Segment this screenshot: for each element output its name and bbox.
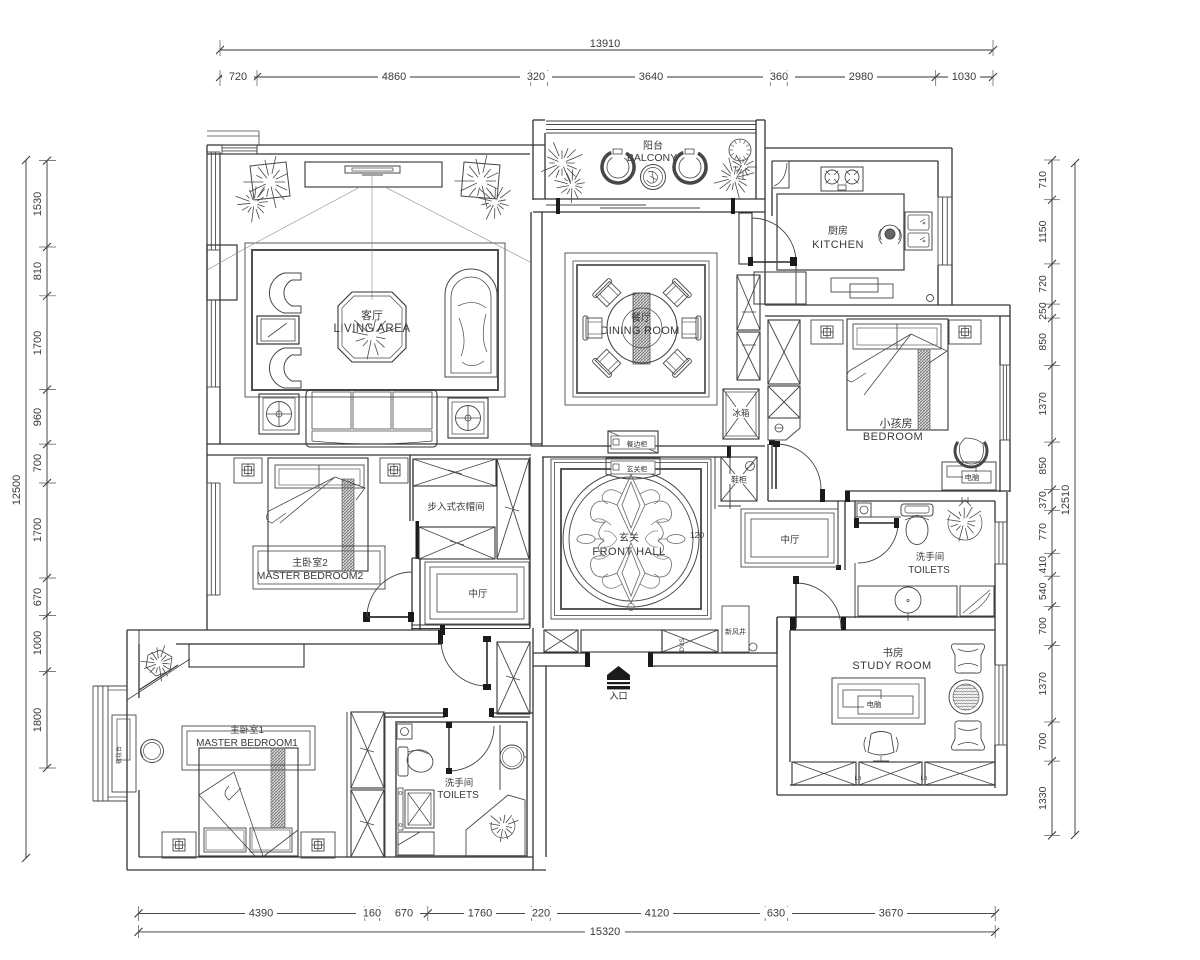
svg-text:DINING ROOM: DINING ROOM: [600, 325, 679, 337]
svg-text:630: 630: [767, 907, 785, 919]
svg-text:710: 710: [1037, 171, 1049, 189]
svg-text:中厅: 中厅: [780, 534, 800, 546]
svg-text:FRONT HALL: FRONT HALL: [592, 546, 665, 558]
svg-text:3640: 3640: [639, 71, 663, 83]
svg-text:1700: 1700: [32, 331, 44, 355]
svg-text:1760: 1760: [468, 907, 492, 919]
svg-text:850: 850: [1037, 333, 1049, 351]
svg-text:Lh: Lh: [855, 776, 862, 782]
svg-text:新风井: 新风井: [725, 627, 746, 636]
svg-text:1370: 1370: [1037, 672, 1049, 696]
svg-text:中厅: 中厅: [468, 588, 488, 600]
svg-text:步入式衣帽间: 步入式衣帽间: [427, 501, 484, 513]
svg-text:960: 960: [32, 408, 44, 426]
svg-text:370: 370: [1037, 491, 1049, 509]
svg-text:670: 670: [395, 907, 413, 919]
svg-text:厨房: 厨房: [828, 224, 848, 237]
svg-text:玄关: 玄关: [619, 531, 639, 544]
svg-text:冰箱: 冰箱: [732, 408, 750, 418]
svg-text:洗手间: 洗手间: [916, 551, 945, 563]
svg-text:700: 700: [1037, 617, 1049, 635]
svg-text:STUDY ROOM: STUDY ROOM: [852, 660, 931, 672]
svg-text:Lh: Lh: [921, 776, 928, 782]
svg-text:360: 360: [770, 71, 788, 83]
svg-text:KITCHEN: KITCHEN: [812, 239, 864, 251]
svg-text:850: 850: [1037, 457, 1049, 475]
svg-text:入口: 入口: [609, 691, 627, 701]
svg-text:TOILETS: TOILETS: [437, 790, 479, 801]
svg-text:700: 700: [32, 454, 44, 472]
svg-text:720: 720: [229, 71, 247, 83]
svg-text:BEDROOM: BEDROOM: [863, 431, 923, 443]
svg-text:320: 320: [527, 71, 545, 83]
svg-text:玄关柜: 玄关柜: [627, 465, 648, 474]
svg-text:120: 120: [690, 530, 704, 540]
svg-text:1800: 1800: [32, 708, 44, 732]
svg-text:4390: 4390: [249, 907, 273, 919]
svg-text:梳妆台: 梳妆台: [115, 746, 123, 764]
svg-text:LIVING AREA: LIVING AREA: [333, 323, 410, 335]
svg-text:餐厅: 餐厅: [631, 311, 651, 324]
svg-text:1530: 1530: [32, 192, 44, 216]
svg-text:洗手间: 洗手间: [445, 777, 474, 789]
svg-text:12510: 12510: [1060, 485, 1072, 516]
svg-text:13910: 13910: [590, 38, 621, 50]
svg-text:4120: 4120: [645, 907, 669, 919]
svg-text:DVS: DVS: [679, 638, 686, 652]
svg-text:电脑: 电脑: [965, 472, 980, 482]
svg-text:810: 810: [32, 262, 44, 280]
svg-text:1330: 1330: [1037, 786, 1049, 810]
svg-text:电脑: 电脑: [867, 699, 882, 709]
svg-text:1370: 1370: [1037, 392, 1049, 416]
svg-text:2980: 2980: [849, 71, 873, 83]
svg-text:3670: 3670: [879, 907, 903, 919]
svg-text:MASTER BEDROOM1: MASTER BEDROOM1: [196, 738, 298, 749]
svg-text:250: 250: [1037, 302, 1049, 320]
svg-text:670: 670: [32, 588, 44, 606]
svg-text:540: 540: [1037, 582, 1049, 600]
svg-text:15320: 15320: [590, 926, 621, 938]
svg-text:书房: 书房: [883, 646, 904, 659]
svg-text:770: 770: [1037, 523, 1049, 541]
svg-text:4860: 4860: [382, 71, 406, 83]
svg-text:小孩房: 小孩房: [880, 417, 913, 430]
svg-text:MASTER BEDROOM2: MASTER BEDROOM2: [257, 570, 364, 582]
svg-text:1150: 1150: [1037, 220, 1049, 243]
svg-text:12500: 12500: [11, 475, 23, 506]
svg-text:主卧室2: 主卧室2: [292, 556, 328, 569]
svg-text:700: 700: [1037, 733, 1049, 751]
svg-text:客厅: 客厅: [361, 308, 383, 322]
svg-text:鞋柜: 鞋柜: [731, 475, 747, 485]
svg-text:阳台: 阳台: [643, 139, 663, 152]
svg-text:1030: 1030: [952, 71, 976, 83]
svg-text:720: 720: [1037, 275, 1049, 293]
svg-text:220: 220: [532, 907, 550, 919]
svg-text:1000: 1000: [32, 631, 44, 655]
svg-text:410: 410: [1037, 556, 1049, 574]
svg-text:主卧室1: 主卧室1: [230, 724, 264, 736]
svg-text:1700: 1700: [32, 518, 44, 542]
svg-text:160: 160: [363, 907, 381, 919]
svg-text:餐边柜: 餐边柜: [627, 440, 648, 449]
svg-text:TOILETS: TOILETS: [908, 565, 950, 576]
